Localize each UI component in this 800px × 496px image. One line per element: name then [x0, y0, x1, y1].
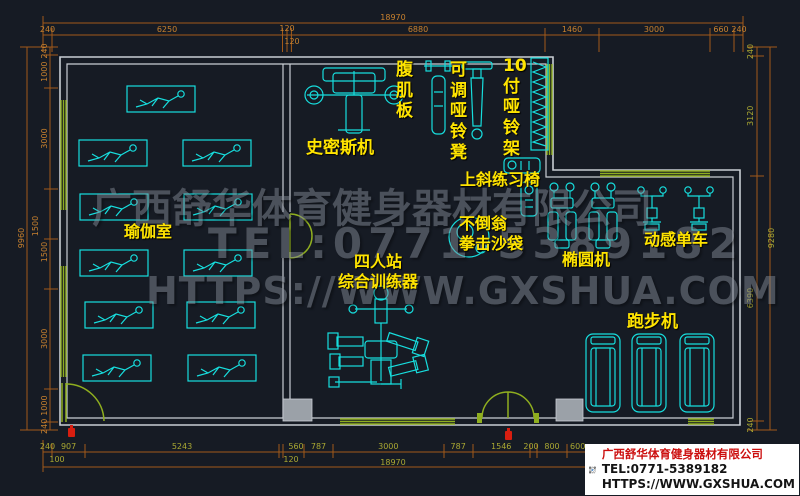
- dim-label: 1000: [40, 62, 49, 82]
- dim-label: 6250: [157, 25, 177, 34]
- dim-label: 200: [523, 442, 538, 451]
- label-adjustable-dumbbell-bench: 可 调 哑 铃 凳: [450, 60, 467, 164]
- label-dumbbell-rack: 10 付 哑 铃 架: [503, 56, 527, 160]
- watermark-website: HTTPS://WWW.GXSHUA.COM: [146, 269, 780, 313]
- dim-label: 5243: [172, 442, 192, 451]
- cad-floorplan-screenshot: { "watermark": { "line1": "广西舒华体育健身器材有限公…: [0, 0, 800, 496]
- dim-label: 9280: [767, 228, 776, 248]
- label-multi-station-trainer: 四人站 综合训练器: [328, 252, 428, 291]
- label-tumbler-punching-bag: 不倒翁 拳击沙袋: [459, 214, 523, 253]
- dim-label: 240: [40, 442, 55, 451]
- dim-label: 1500: [31, 216, 40, 236]
- dim-label: 3120: [746, 106, 755, 126]
- dim-label: 600: [570, 442, 585, 451]
- qr-code: [589, 449, 596, 491]
- fire-extinguisher-icon: [68, 425, 512, 440]
- dim-label: 240: [40, 25, 55, 34]
- dim-label: 240: [40, 43, 49, 58]
- dim-label: 1000: [40, 395, 49, 415]
- label-incline-chair: 上斜练习椅: [460, 170, 540, 190]
- dim-label: 18970: [380, 458, 405, 467]
- logo-company-name: 广西舒华体育健身器材有限公司: [602, 447, 795, 461]
- dim-label: 9960: [17, 228, 26, 248]
- treadmills-drawing: [586, 334, 714, 412]
- dim-label: 120: [284, 37, 299, 46]
- label-smith-machine: 史密斯机: [306, 138, 374, 159]
- dim-label: 6880: [408, 25, 428, 34]
- dim-label: 1500: [40, 242, 49, 262]
- dim-label: 120: [279, 24, 294, 33]
- smith-machine-drawing: [305, 68, 403, 133]
- dim-label: 3000: [40, 128, 49, 148]
- dim-label: 240: [731, 25, 746, 34]
- dim-label: 1460: [562, 25, 582, 34]
- logo-website: HTTPS://WWW.GXSHUA.COM: [602, 477, 795, 492]
- dim-label: 100: [49, 455, 64, 464]
- logo-phone: TEL:0771-5389182: [602, 462, 795, 477]
- label-spin-bike: 动感单车: [644, 230, 708, 250]
- dim-label: 240: [746, 44, 755, 59]
- dim-label: 120: [283, 455, 298, 464]
- main-entrance-double-door: [482, 392, 534, 418]
- dim-label: 3000: [644, 25, 664, 34]
- label-elliptical: 椭圆机: [562, 250, 610, 270]
- label-treadmill: 跑步机: [627, 312, 678, 333]
- qr-center-logo: [592, 469, 593, 470]
- dim-label: 3000: [40, 329, 49, 349]
- label-ab-board: 腹 肌 板: [396, 60, 413, 122]
- dim-label: 560: [288, 442, 303, 451]
- dim-label: 787: [311, 442, 326, 451]
- dim-label: 3000: [378, 442, 398, 451]
- dim-label: 1546: [491, 442, 511, 451]
- ab-board-drawing: [424, 61, 452, 134]
- dim-label: 787: [451, 442, 466, 451]
- label-yoga-room: 瑜伽室: [124, 222, 172, 242]
- dim-label: 800: [544, 442, 559, 451]
- dim-label: 907: [61, 442, 76, 451]
- dim-label: 240: [746, 417, 755, 432]
- yoga-exterior-door-arc: [66, 384, 104, 421]
- dim-label: 240: [40, 419, 49, 434]
- yoga-exterior-door-leaf: [62, 383, 66, 422]
- dim-label: 18970: [380, 13, 405, 22]
- company-logo-box: 广西舒华体育健身器材有限公司 TEL:0771-5389182 HTTPS://…: [585, 444, 799, 495]
- dim-label: 660: [713, 25, 728, 34]
